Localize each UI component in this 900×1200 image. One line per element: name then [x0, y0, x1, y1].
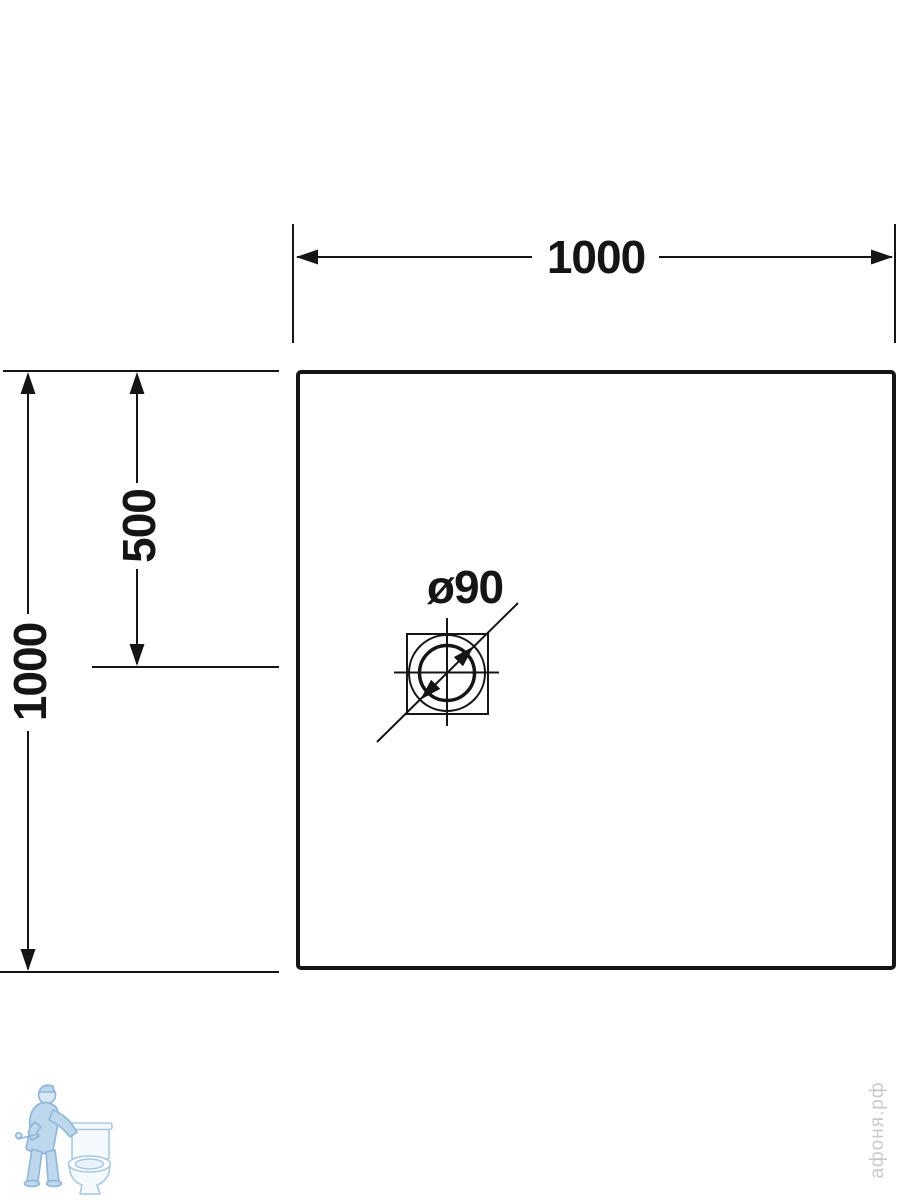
- arrow-up-icon: [130, 372, 145, 394]
- drawing-canvas: 1000 1000 500 ø90 афоня.рф: [0, 0, 900, 1200]
- dim-label-top-width: 1000: [547, 234, 645, 280]
- arrow-left-icon: [296, 250, 318, 265]
- arrow-down-icon: [21, 949, 36, 971]
- arrow-right-icon: [871, 250, 893, 265]
- plumber-watermark-icon: [12, 1082, 118, 1198]
- toilet-seat-inner: [76, 1159, 104, 1169]
- plumber-leg-left: [27, 1149, 42, 1181]
- drain-symbol: [377, 603, 518, 742]
- plumber-cap: [39, 1085, 54, 1092]
- tray-outline: [298, 372, 894, 968]
- dim-label-left-height: 1000: [7, 623, 53, 721]
- arrow-down-icon: [130, 644, 145, 666]
- toilet-tank: [72, 1128, 109, 1159]
- dim-label-center-offset: 500: [116, 489, 162, 563]
- site-watermark-text: афоня.рф: [867, 1081, 889, 1178]
- plumber-shoe-right: [47, 1181, 62, 1187]
- plumber-leg-right: [46, 1150, 59, 1181]
- arrow-up-icon: [21, 372, 36, 394]
- drain-diameter-label: ø90: [427, 564, 503, 610]
- plumber-shoe-left: [25, 1181, 40, 1187]
